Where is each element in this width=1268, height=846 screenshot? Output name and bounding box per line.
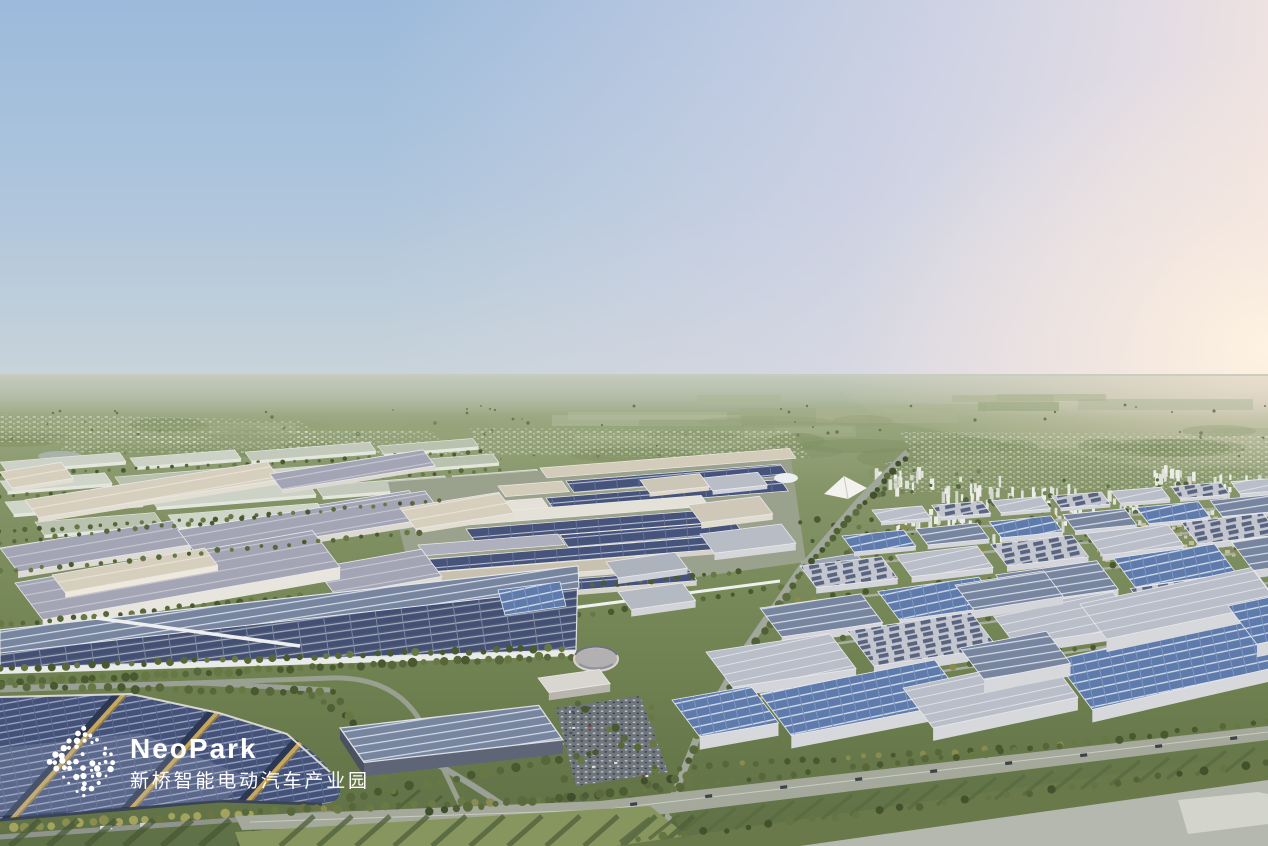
svg-text:NeoPark: NeoPark — [130, 733, 258, 764]
svg-text:新桥智能电动汽车产业园: 新桥智能电动汽车产业园 — [130, 770, 370, 792]
